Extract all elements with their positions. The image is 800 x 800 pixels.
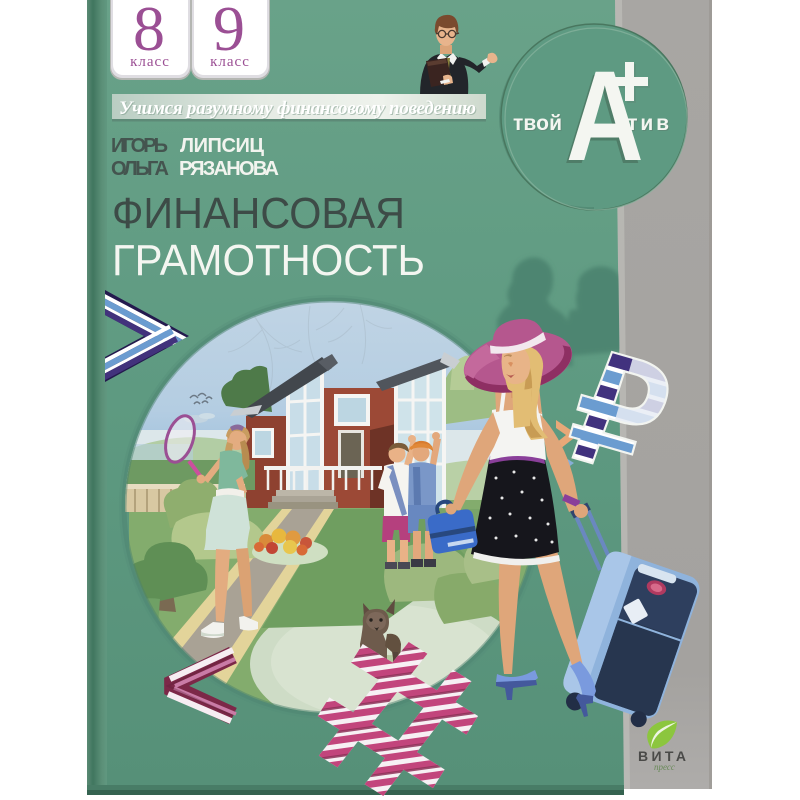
svg-text:класс: класс	[210, 54, 250, 70]
svg-text:ЛИПСИЦ: ЛИПСИЦ	[180, 135, 264, 157]
svg-text:твой: твой	[513, 112, 562, 135]
svg-text:класс: класс	[130, 54, 170, 70]
svg-text:ГРАМОТНОСТЬ: ГРАМОТНОСТЬ	[112, 236, 425, 285]
svg-text:A: A	[566, 45, 644, 188]
svg-text:Учимся разумному финансовому п: Учимся разумному финансовому поведению	[119, 98, 476, 119]
svg-text:ИГОРЬ: ИГОРЬ	[111, 135, 168, 157]
svg-text:ФИНАНСОВАЯ: ФИНАНСОВАЯ	[112, 189, 405, 238]
svg-text:ОЛЬГА: ОЛЬГА	[111, 158, 169, 180]
svg-text:пресс: пресс	[654, 762, 675, 772]
svg-text:РЯЗАНОВА: РЯЗАНОВА	[179, 158, 279, 180]
